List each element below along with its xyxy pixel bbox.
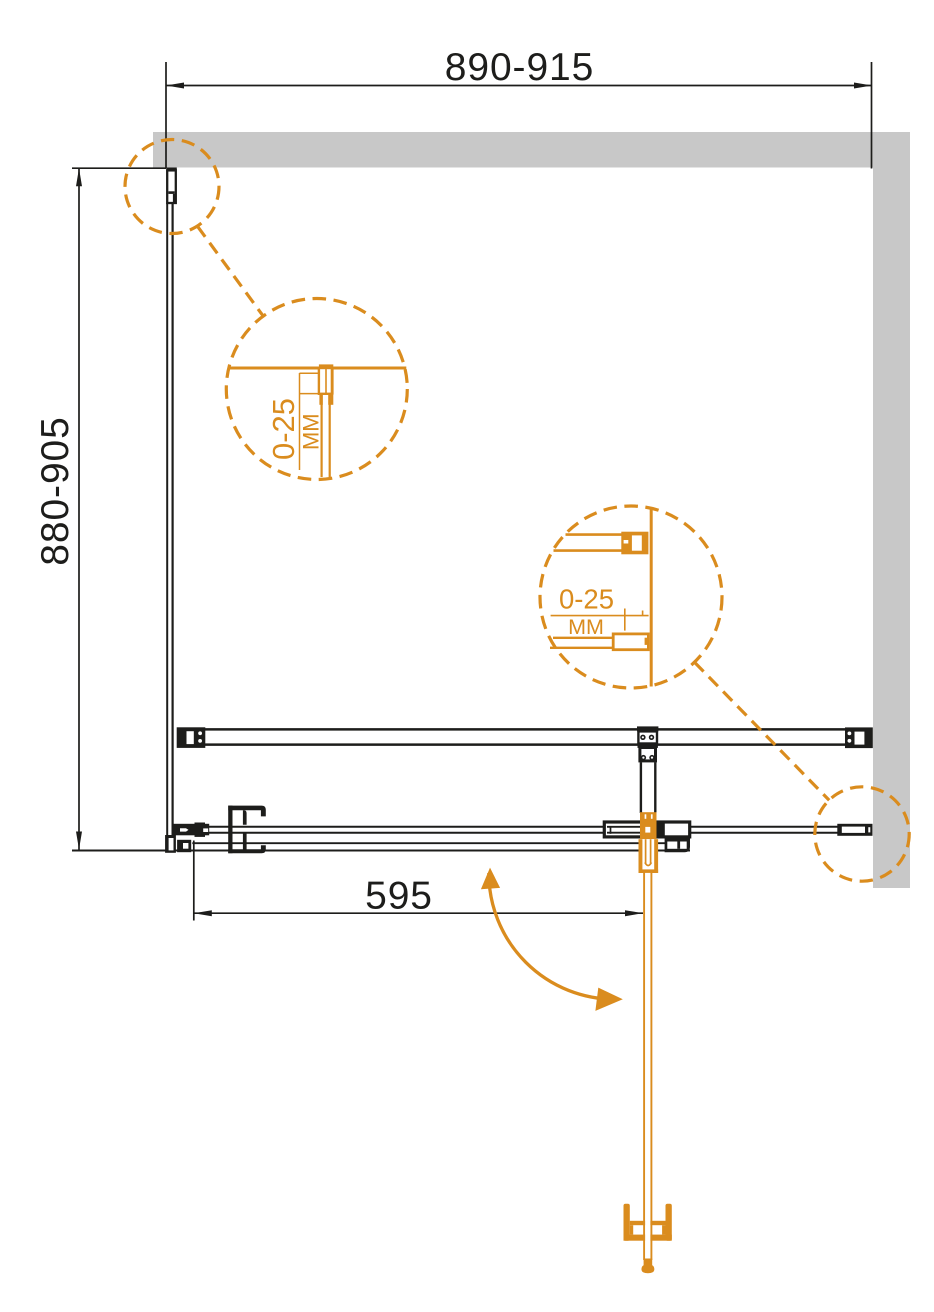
- svg-text:MM: MM: [299, 413, 324, 450]
- svg-text:0-25: 0-25: [559, 583, 614, 614]
- svg-text:880-905: 880-905: [34, 416, 77, 565]
- svg-text:MM: MM: [568, 615, 604, 639]
- svg-text:890-915: 890-915: [445, 46, 594, 89]
- svg-text:595: 595: [365, 875, 433, 918]
- svg-text:0-25: 0-25: [266, 398, 301, 460]
